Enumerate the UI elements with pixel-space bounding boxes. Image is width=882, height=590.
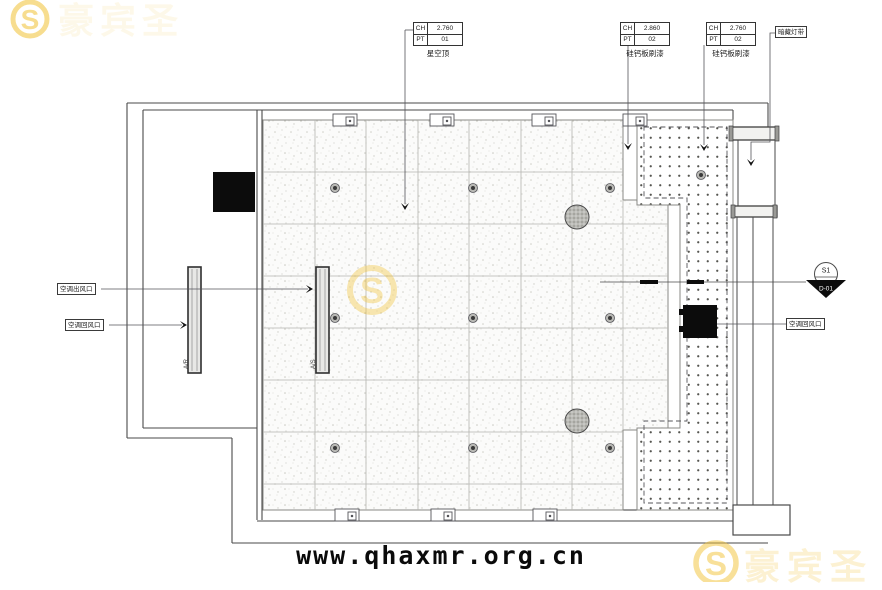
- downlight-icon: [331, 184, 340, 193]
- downlight-icon: [331, 444, 340, 453]
- watermark-domain-text: www.qhaxmr.org.cn: [0, 541, 882, 570]
- light-strip-label: 暗藏灯带: [775, 26, 807, 38]
- downlight-icon: [331, 314, 340, 323]
- section-marker-detail: D-01: [819, 286, 833, 293]
- ac-vent-supply: [316, 267, 329, 373]
- downlight-icon: [606, 314, 615, 323]
- ceiling-label-caption: 星空顶: [413, 48, 463, 59]
- speaker-icon: [565, 409, 589, 433]
- speaker-icon: [565, 205, 589, 229]
- vent-tag-supply: A/S: [311, 359, 317, 369]
- ac-vent-return: [188, 267, 201, 373]
- svg-text:S: S: [21, 4, 40, 35]
- svg-text:S: S: [360, 270, 384, 311]
- ceiling-label-gypsum-2: CH 2.760 PT 02 硅钙板刷漆: [706, 22, 756, 59]
- ceiling-label-caption: 硅钙板刷漆: [620, 48, 670, 59]
- ceiling-plan-page: S1 D-01 S S S CH 2.760 PT 01 星空顶 CH 2.86…: [0, 0, 882, 582]
- watermark-brand-text: 豪宾圣: [58, 0, 184, 44]
- ceiling-label-caption: 硅钙板刷漆: [706, 48, 756, 59]
- ceiling-plan-drawing: S1 D-01 S S S: [0, 0, 882, 582]
- downlight-icon: [469, 314, 478, 323]
- return-outlet-label-right: 空调回风口: [786, 318, 825, 330]
- watermark-logo-icon: S: [13, 2, 47, 36]
- downlight-icon: [606, 184, 615, 193]
- downlight-icon: [606, 444, 615, 453]
- ceiling-label-starry: CH 2.760 PT 01 星空顶: [413, 22, 463, 59]
- downlight-icon: [469, 444, 478, 453]
- column-black-square: [213, 172, 255, 212]
- supply-outlet-label: 空调出风口: [57, 283, 96, 295]
- return-air-grille: [679, 305, 717, 338]
- vent-tag-return: A/R: [184, 359, 190, 369]
- section-marker-code: S1: [822, 268, 831, 275]
- section-marker: S1 D-01: [806, 263, 846, 299]
- return-outlet-label-left: 空调回风口: [65, 319, 104, 331]
- downlight-icon: [469, 184, 478, 193]
- downlight-icon: [697, 171, 706, 180]
- ceiling-label-gypsum-1: CH 2.860 PT 02 硅钙板刷漆: [620, 22, 670, 59]
- right-wall-structure: [729, 126, 790, 535]
